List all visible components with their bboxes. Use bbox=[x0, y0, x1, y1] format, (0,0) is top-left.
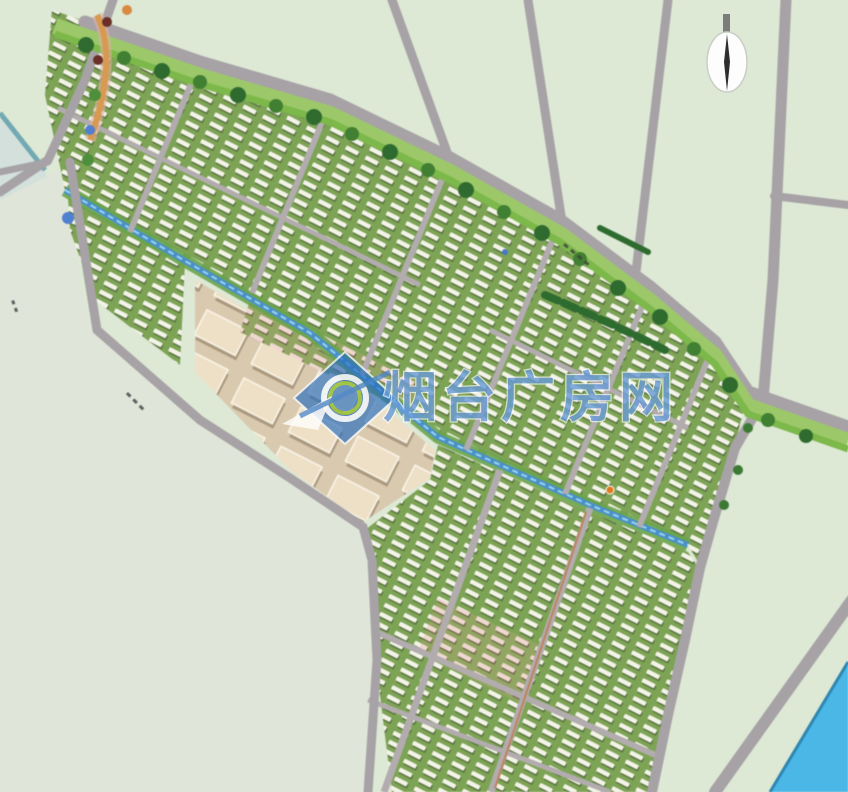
watermark-text: 烟台广房网 bbox=[383, 368, 678, 428]
pond bbox=[85, 125, 95, 135]
pond bbox=[62, 212, 74, 224]
tree-icon bbox=[799, 429, 813, 443]
tree-icon bbox=[117, 51, 131, 65]
site-plan-canvas: 烟台广房网 bbox=[0, 0, 848, 792]
tree-icon bbox=[687, 342, 701, 356]
tree-icon bbox=[761, 413, 775, 427]
tree-icon bbox=[82, 154, 94, 166]
dark-roof-building bbox=[93, 55, 103, 65]
tree-icon bbox=[193, 75, 207, 89]
tree-icon bbox=[722, 377, 738, 393]
tree-icon bbox=[154, 63, 170, 79]
tree-icon bbox=[382, 144, 398, 160]
dark-roof-building bbox=[102, 17, 112, 27]
tree-icon bbox=[269, 99, 283, 113]
tree-icon bbox=[652, 309, 668, 325]
tree-icon bbox=[230, 87, 246, 103]
tree-icon bbox=[345, 127, 359, 141]
tree-icon bbox=[458, 182, 474, 198]
tree-icon bbox=[421, 163, 435, 177]
tree-icon bbox=[89, 89, 101, 101]
tree-icon bbox=[306, 109, 322, 125]
orange-landmark-dot bbox=[606, 486, 614, 494]
tree-icon bbox=[497, 205, 511, 219]
tan-roof-building bbox=[122, 5, 132, 15]
tree-icon bbox=[78, 37, 94, 53]
site-plan-map: 烟台广房网 bbox=[0, 0, 848, 792]
tree-icon bbox=[610, 280, 626, 296]
blue-landmark-dot bbox=[502, 249, 508, 255]
tree-icon bbox=[534, 225, 550, 241]
